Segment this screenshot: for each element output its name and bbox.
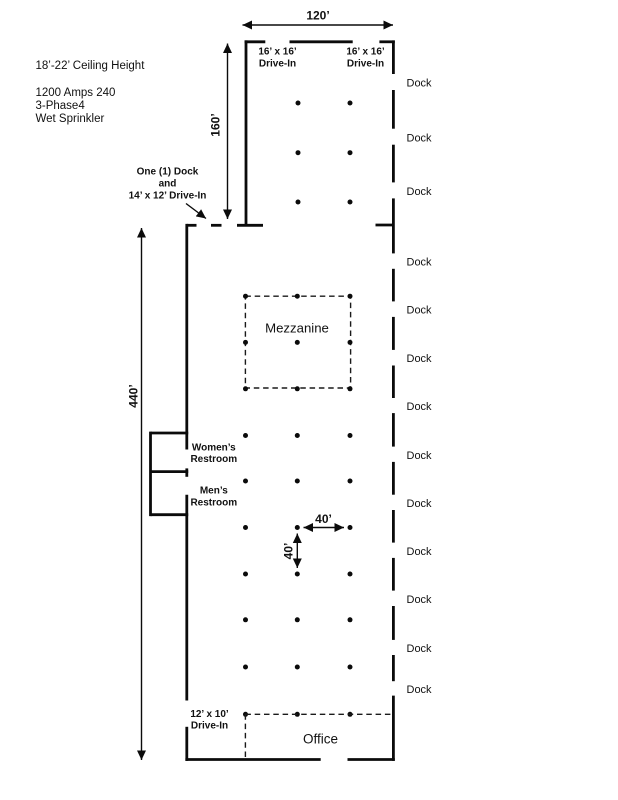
svg-text:Office: Office — [303, 731, 338, 746]
svg-text:Dock: Dock — [407, 305, 433, 317]
svg-text:and: and — [159, 179, 177, 190]
svg-text:Dock: Dock — [407, 450, 433, 462]
svg-text:Drive-In: Drive-In — [259, 59, 296, 70]
svg-text:Dock: Dock — [407, 401, 433, 413]
svg-text:Mezzanine: Mezzanine — [265, 321, 329, 336]
svg-text:18’-22’ Ceiling Height: 18’-22’ Ceiling Height — [36, 60, 146, 72]
svg-text:1200 Amps 240: 1200 Amps 240 — [36, 87, 116, 99]
svg-text:12’ x 10’: 12’ x 10’ — [190, 709, 229, 720]
svg-text:16’ x 16’: 16’ x 16’ — [346, 47, 385, 58]
svg-text:Restroom: Restroom — [190, 454, 237, 465]
svg-text:Dock: Dock — [407, 353, 433, 365]
svg-text:Dock: Dock — [407, 78, 433, 90]
svg-text:Dock: Dock — [407, 186, 433, 198]
svg-text:Dock: Dock — [407, 546, 433, 558]
svg-text:Restroom: Restroom — [190, 498, 237, 509]
svg-text:Dock: Dock — [407, 257, 433, 269]
svg-text:Dock: Dock — [407, 594, 433, 606]
svg-text:Drive-In: Drive-In — [347, 59, 384, 70]
svg-text:16’ x 16’: 16’ x 16’ — [258, 47, 297, 58]
svg-text:Drive-In: Drive-In — [191, 721, 228, 732]
svg-text:14’ x 12’ Drive-In: 14’ x 12’ Drive-In — [129, 191, 207, 202]
svg-text:40’: 40’ — [281, 543, 295, 560]
svg-text:3-Phase4: 3-Phase4 — [36, 100, 86, 112]
svg-text:Women’s: Women’s — [192, 443, 236, 454]
svg-text:One (1) Dock: One (1) Dock — [137, 167, 199, 178]
svg-text:Dock: Dock — [407, 643, 433, 655]
svg-text:Dock: Dock — [407, 684, 433, 696]
svg-text:Wet Sprinkler: Wet Sprinkler — [36, 113, 105, 125]
svg-text:Dock: Dock — [407, 132, 433, 144]
svg-text:120’: 120’ — [306, 9, 329, 23]
svg-text:160’: 160’ — [208, 113, 222, 136]
svg-text:40’: 40’ — [315, 512, 332, 526]
svg-text:Men’s: Men’s — [200, 486, 228, 497]
svg-text:440’: 440’ — [126, 384, 140, 407]
svg-text:Dock: Dock — [407, 498, 433, 510]
